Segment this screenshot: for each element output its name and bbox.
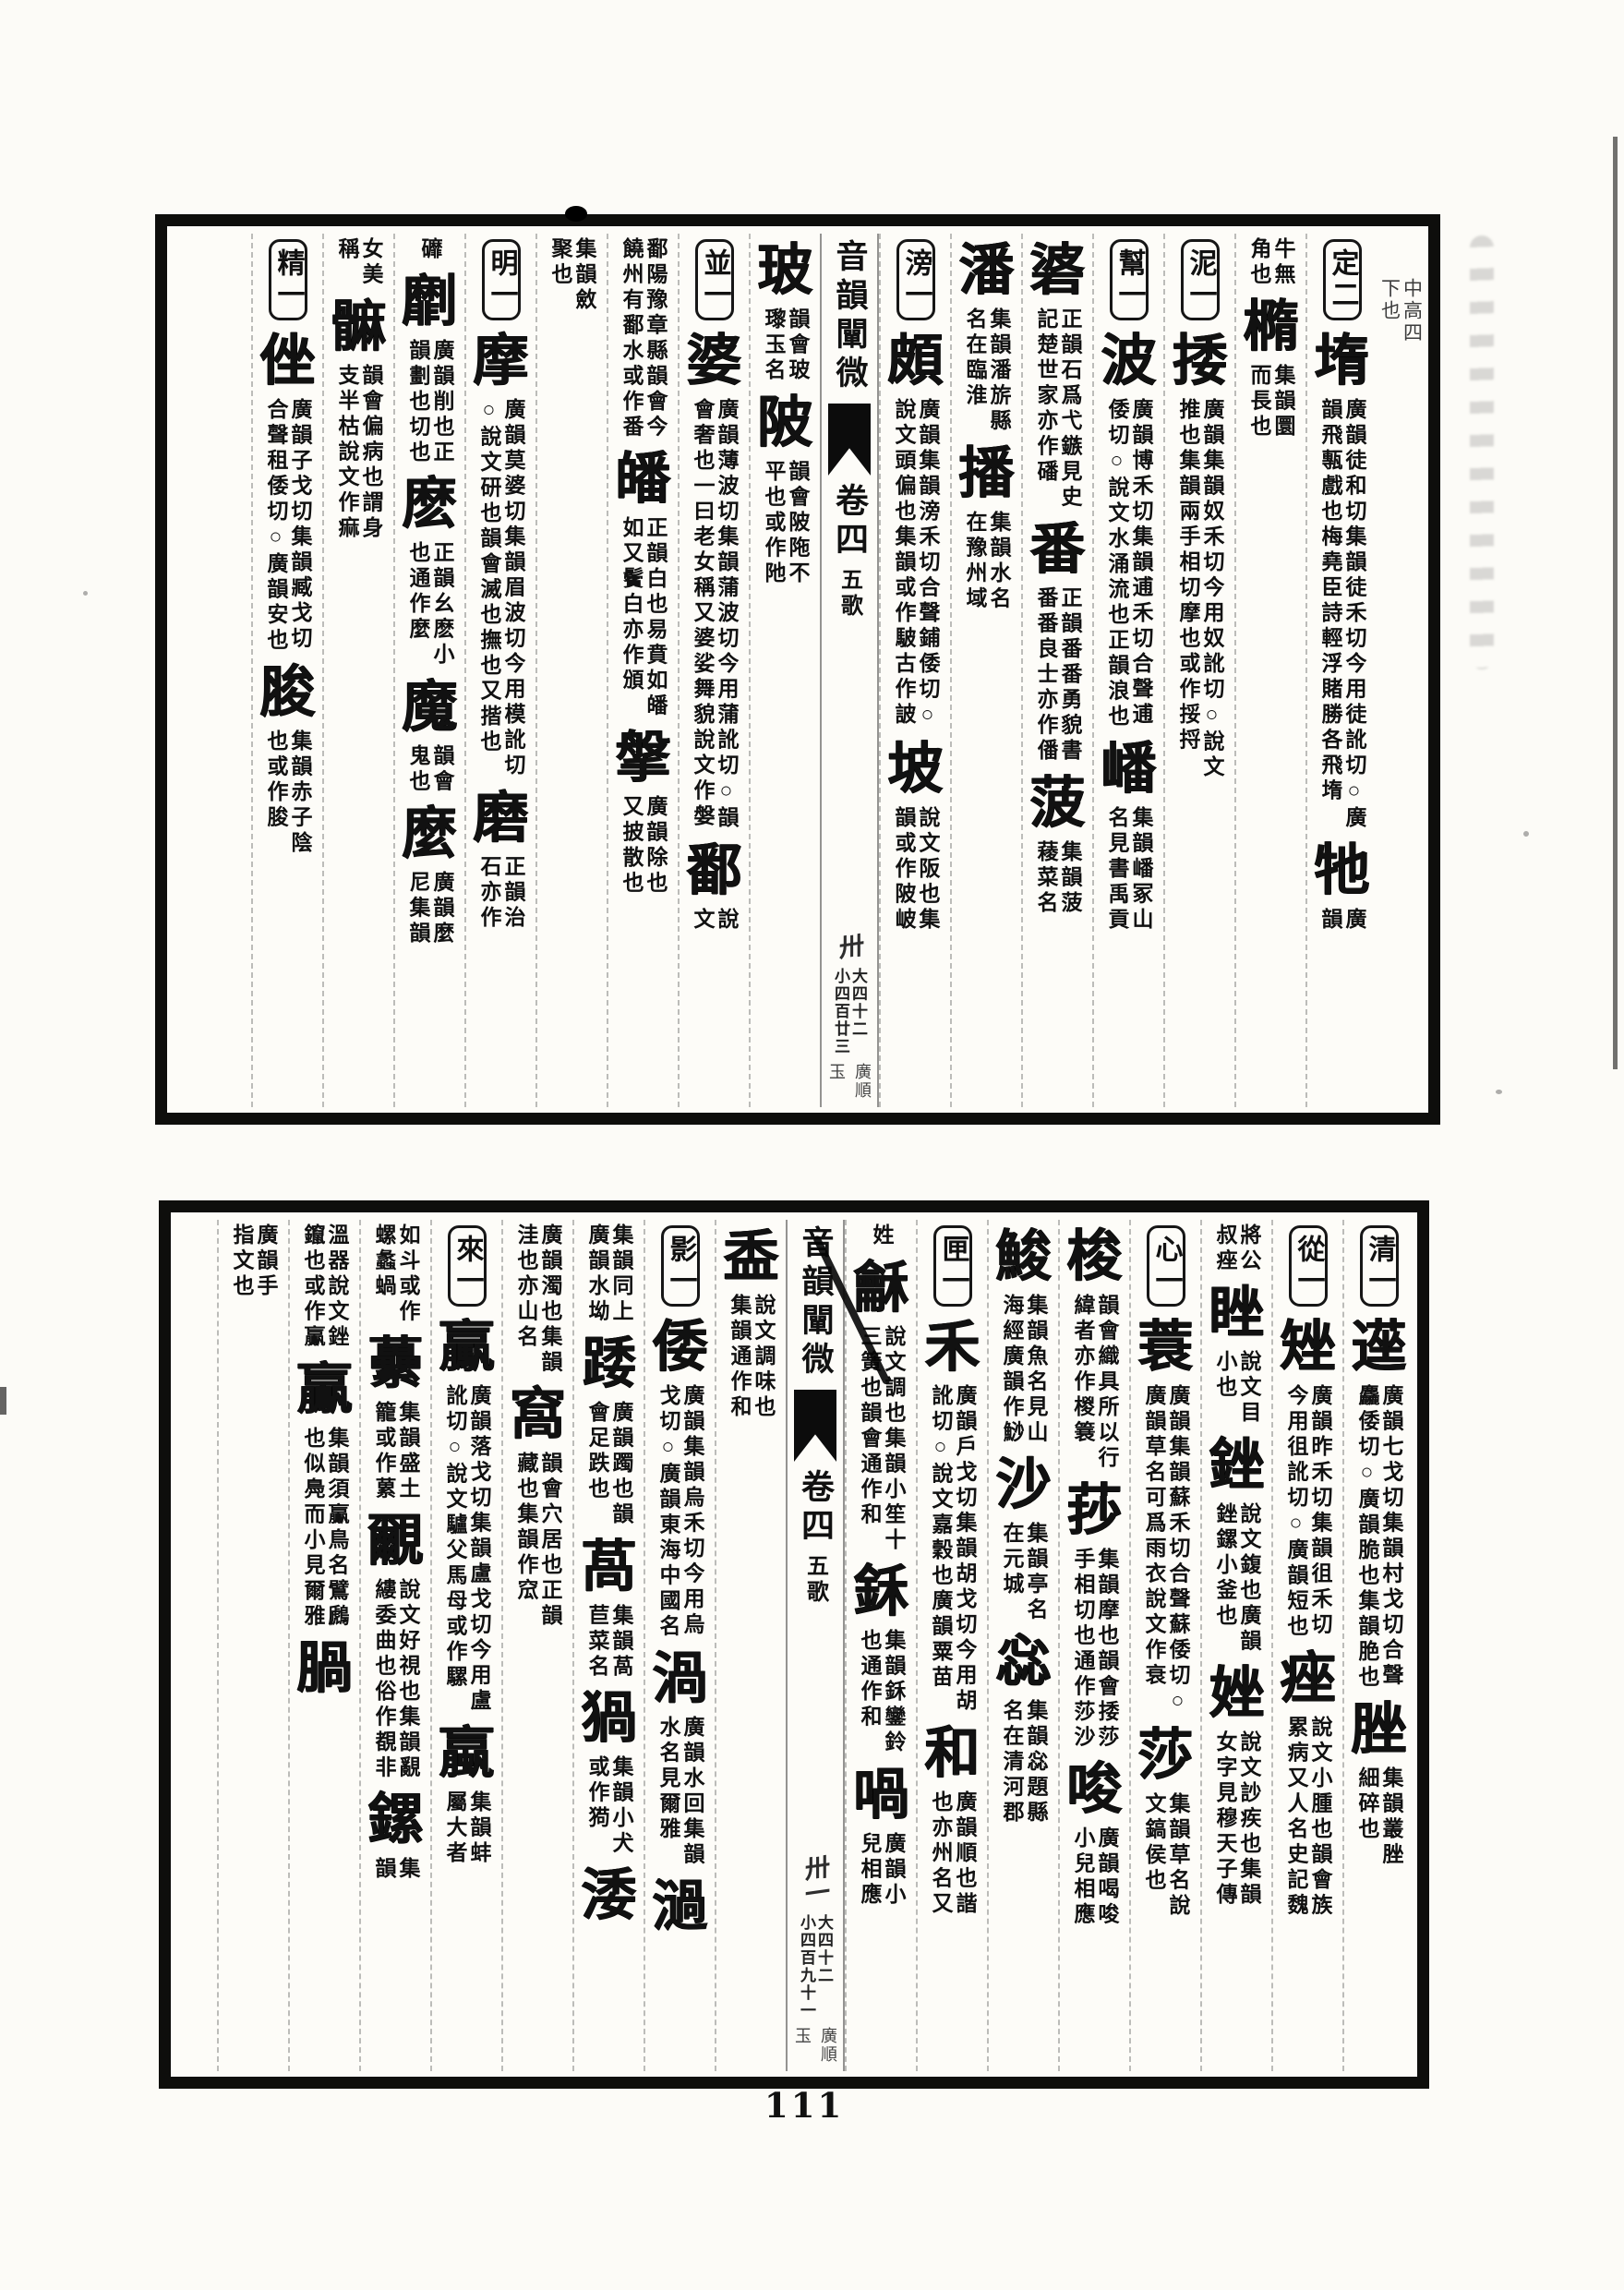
rhyme-name: 五歌 — [800, 1554, 832, 1606]
initial-class-label: 泥一 — [1181, 239, 1220, 320]
note-line-left: 韻 — [373, 1857, 394, 1883]
headword: 脞 — [1352, 1695, 1407, 1764]
headword: 覼 — [368, 1507, 424, 1575]
headword: 盉 — [724, 1223, 779, 1291]
headword: 牠 — [1315, 837, 1370, 905]
entry-column: 從一矬廣韻昨禾切集韻徂禾切今用徂訛切○廣韻短也痤說文小腫也韻會族累病又人名史記魏 — [1271, 1220, 1342, 2071]
gloss-note: 韻會陂陁不平也或作阤 — [763, 460, 808, 587]
note-line-right: 集韻草名說 — [1167, 1792, 1188, 1920]
initial-class-label: 來一 — [448, 1225, 487, 1307]
headword: 涹 — [582, 1862, 637, 1930]
note-line-right: 如斗或作 — [397, 1223, 418, 1325]
margin-annotation: 中高四下也 — [1380, 278, 1422, 344]
top-leaf-columns: 中高四下也定二堶廣韻徒和切集韻徒禾切今用徒訛切○廣韻飛甎戲也梅堯臣詩輕浮賭勝各飛… — [167, 226, 1428, 1113]
note-line-left: 又披散也 — [620, 795, 642, 897]
continuation-note: 廣韻手指文也 — [231, 1223, 276, 1300]
note-line-right: 集韻萵 — [610, 1604, 632, 1681]
juan-number: 卷四 — [791, 1469, 839, 1547]
gloss-note: 廣韻除也又披散也 — [620, 795, 666, 897]
headword: 禾 — [925, 1313, 980, 1381]
note-line-left: 緯者亦作椶簔 — [1072, 1294, 1093, 1472]
headword: 脧 — [260, 658, 316, 727]
headword: 莏 — [1067, 1476, 1123, 1545]
small-char-count: 小四百九十一 — [799, 1914, 814, 2019]
note-line-right: 廣韻喝唆 — [1096, 1826, 1117, 1928]
headword: 驘 — [439, 1313, 495, 1381]
gloss-note: 說文小腫也韻會族累病又人名史記魏 — [1285, 1716, 1330, 1919]
headword: 梭 — [1067, 1223, 1123, 1291]
gloss-note: 廣韻削也正韻劃也切也 — [407, 339, 452, 466]
headword: 鉌 — [854, 1558, 909, 1626]
note-line-left: 藏也集韻作窊 — [515, 1452, 536, 1630]
note-line-left: 集韻通作和 — [728, 1294, 750, 1421]
note-line-left: 螺蠡蝸 — [373, 1223, 394, 1325]
gloss-note: 廣韻順也諧也亦州名又 — [930, 1790, 975, 1918]
gloss-note: 韻會織具所以行緯者亦作椶簔 — [1072, 1294, 1117, 1472]
gloss-note: 集韻菠薐菜名 — [1035, 840, 1080, 917]
note-line-right: 集韻同上 — [610, 1223, 632, 1325]
note-line-left: 韻 — [1319, 908, 1341, 934]
note-line-right: 韻會 — [431, 744, 452, 795]
note-line-right: 說文調味也 — [752, 1294, 774, 1421]
note-line-left: 訛切○說文嘉穀也廣韻粟苗 — [930, 1384, 951, 1715]
gloss-note: 廣韻集韻滂禾切合聲鋪倭切○說文頭偏也集韻或作駊古作詖 — [893, 398, 938, 730]
note-line-right: 正韻幺麽小 — [431, 541, 452, 669]
entry-column: 幫一波廣韻博禾切集韻逋禾切合聲逋倭切○說文水涌流也正韻浪也嶓集韻嶓冢山名見書禹貢 — [1092, 234, 1163, 1107]
carver-mark: 廣順 — [816, 2027, 840, 2064]
gloss-note: 說文訬疾也集韻女字見穆天子傳 — [1214, 1730, 1259, 1909]
entry-column: 鄱陽豫章縣韻會今饒州有鄱水或作番皤正韻白也易賁如皤如又鬢白亦作頒搫廣韻除也又披散… — [607, 234, 678, 1107]
gloss-note: 廣韻子戈切集韻臧戈切合聲租倭切○廣韻安也 — [265, 398, 310, 654]
entry-column: 玻韻會玻瓈玉名陂韻會陂陁不平也或作阤 — [749, 234, 820, 1107]
carver-marks: 廣順玉 — [824, 1063, 874, 1100]
initial-class-label: 明一 — [482, 239, 521, 320]
carver-mark: 玉 — [824, 1063, 848, 1100]
note-line-left: 記楚世家亦作磻 — [1035, 307, 1056, 511]
entry-column: 清一遳廣韻七戈切集韻村戈切合聲麤倭切○廣韻脆也集韻脃也脞集韻叢脞細碎也 — [1342, 1220, 1413, 2071]
large-char-count: 大四十二 — [816, 1914, 832, 2019]
note-line-left: 番番良士亦作僠 — [1035, 586, 1056, 765]
gloss-note: 韻會鬼也 — [407, 744, 452, 795]
note-line-right: 集韻惢題縣 — [1025, 1699, 1046, 1826]
gloss-note: 正韻白也易賁如皤如又鬢白亦作頒 — [620, 516, 666, 719]
gloss-note: 韻會偏病也謂身支半枯說文作痲 — [336, 364, 381, 542]
gloss-note: 廣韻莫婆切集韻眉波切今用模訛切○說文研也韻會滅也撫也又揩也 — [478, 398, 523, 779]
note-line-right: 集韻亭名 — [1025, 1522, 1046, 1623]
scan-speckle — [83, 591, 88, 596]
entry-column: 潘集韻潘旂縣名在臨淮播集韻水名在豫州域 — [950, 234, 1021, 1107]
note-line-right: 集 — [397, 1857, 418, 1883]
gloss-note: 廣韻博禾切集韻逋禾切合聲逋倭切○說文水涌流也正韻浪也 — [1106, 398, 1151, 730]
continuation-note: 女美稱 — [336, 237, 381, 288]
note-line-left: 洼也亦山名 — [515, 1223, 536, 1376]
note-line-left: 瓈玉名 — [763, 307, 784, 384]
entry-column: 泥一捼廣韻集韻奴禾切今用奴訛切○說文推也集韻兩手相切摩也或作挼捋 — [1163, 234, 1234, 1107]
note-line-left: 在元城 — [1001, 1522, 1022, 1623]
gloss-note: 集韻 — [373, 1857, 418, 1883]
fishtail-mark — [794, 1390, 836, 1462]
headword: 鮻 — [996, 1223, 1052, 1291]
large-char-count: 大四十二 — [850, 968, 866, 1055]
note-line-right: 廣韻戶戈切集韻胡戈切今用胡 — [954, 1384, 975, 1715]
note-line-right: 將公 — [1238, 1223, 1259, 1274]
headword: 菠 — [1030, 769, 1086, 838]
note-line-right: 廣韻水回集韻 — [681, 1716, 703, 1868]
margin-annotation-text: 中高四 — [1402, 278, 1422, 344]
entry-column: 溫器說文銼鑹也或作鸁鸁集韻須鸁鳥名鷿鷉也似鳧而小見爾雅腡 — [288, 1220, 359, 2071]
entry-column: 鮻集韻魚名見山海經廣韻作鯋沙集韻亭名在元城惢集韻惢題縣名在清河郡 — [987, 1220, 1058, 2071]
headword: 摩 — [474, 327, 529, 395]
note-line-left: 叔痤 — [1214, 1223, 1235, 1274]
headword: 頗 — [888, 327, 944, 395]
headword: 矬 — [1281, 1313, 1336, 1381]
note-line-left: 如又鬢白亦作頒 — [620, 516, 642, 719]
continuation-note: 牛無角也 — [1248, 237, 1293, 288]
note-line-right: 集韻嶓冢山 — [1130, 806, 1151, 934]
note-line-right: 說文調也集韻小笙十 — [883, 1325, 904, 1554]
gloss-note: 集韻亭名在元城 — [1001, 1522, 1046, 1623]
note-line-left: 石亦作 — [478, 855, 499, 932]
note-line-right: 集韻摩也韻會捼莎 — [1096, 1548, 1117, 1751]
bottom-leaf-columns: 清一遳廣韻七戈切集韻村戈切合聲麤倭切○廣韻脆也集韻脃也脞集韻叢脞細碎也從一矬廣韻… — [171, 1212, 1417, 2077]
headword: 喎 — [854, 1761, 909, 1829]
scanned-book-page: 中高四下也定二堶廣韻徒和切集韻徒禾切今用徒訛切○廣韻飛甎戲也梅堯臣詩輕浮賭勝各飛… — [0, 0, 1624, 2290]
entry-column: 姓龢說文調也集韻小笙十三簧也韻會通作和鉌集韻鉌鑾鈴也通作和喎廣韻小兒相應 — [845, 1220, 916, 2071]
note-line-right: 集韻魚名見山 — [1025, 1294, 1046, 1446]
note-line-right: 韻會穴居也正韻 — [539, 1452, 560, 1630]
headword: 魔 — [403, 673, 458, 741]
gloss-note: 正韻治石亦作 — [478, 855, 523, 932]
gloss-note: 韻會玻瓈玉名 — [763, 307, 808, 384]
gloss-note: 廣韻七戈切集韻村戈切合聲麤倭切○廣韻脆也集韻脃也 — [1356, 1384, 1401, 1691]
margin-annotation-column: 中高四下也 — [1377, 234, 1425, 1107]
gloss-note: 集韻摩也韻會捼莎手相切也通作莎沙 — [1072, 1548, 1117, 1751]
note-line-left: 名見書禹貢 — [1106, 806, 1127, 934]
note-line-right: 說文訬疾也集韻 — [1238, 1730, 1259, 1909]
note-line-left: 廣韻草名可爲雨衣說文作衰 — [1143, 1384, 1164, 1717]
note-line-right: 正韻番番勇貌書 — [1059, 586, 1080, 765]
carver-mark: 玉 — [790, 2027, 814, 2064]
gloss-note: 說文 — [692, 908, 737, 934]
note-line-right: 說文小腫也韻會族 — [1309, 1716, 1330, 1919]
headword: 搫 — [616, 724, 671, 792]
entry-column: 廣韻手指文也 — [217, 1220, 288, 2071]
entry-column: 並一婆廣韻薄波切集韻蒲波切今用蒲訛切○韻會奢也一曰老女稱又婆娑舞貌說文作媻鄱說文 — [678, 234, 749, 1107]
gloss-note: 集韻草名說文鎬侯也 — [1143, 1792, 1188, 1920]
headword: 㛗 — [1209, 1659, 1265, 1728]
headword: 沙 — [996, 1451, 1052, 1519]
entry-column: 廣韻濁也集韻洼也亦山名窩韻會穴居也正韻藏也集韻作窊 — [501, 1220, 572, 2071]
character-counts: 大四十二小四百九十一 — [799, 1914, 832, 2019]
note-line-left: 銼鏍小釜也 — [1214, 1502, 1235, 1655]
note-line-right: 廣韻手 — [255, 1223, 276, 1300]
gloss-note: 廣韻薄波切集韻蒲波切今用蒲訛切○韻會奢也一曰老女稱又婆娑舞貌說文作媻 — [692, 398, 737, 832]
headword: 濄 — [653, 1873, 708, 1941]
note-line-right: 廣韻集韻奴禾切今用奴訛切○說文 — [1201, 398, 1222, 781]
initial-class-label: 滂一 — [896, 239, 935, 320]
entry-column: 女美稱髍韻會偏病也謂身支半枯說文作痲 — [322, 234, 393, 1107]
note-line-left: 文鎬侯也 — [1143, 1792, 1164, 1920]
note-line-left: 女字見穆天子傳 — [1214, 1730, 1235, 1909]
headword: 髍 — [331, 293, 387, 361]
gloss-note: 廣韻喝唆小兒相應 — [1072, 1826, 1117, 1928]
gloss-note: 廣韻徒和切集韻徒禾切今用徒訛切○廣韻飛甎戲也梅堯臣詩輕浮賭勝各飛堶 — [1319, 398, 1365, 832]
gloss-note: 說文調味也集韻通作和 — [728, 1294, 774, 1421]
note-line-right: 集韻鉌鑾鈴 — [883, 1629, 904, 1756]
gloss-note: 集韻赤子陰也或作朘 — [265, 729, 310, 857]
note-line-left: 薐菜名 — [1035, 840, 1056, 917]
headword: 鄱 — [687, 837, 742, 905]
headword: 龢 — [854, 1254, 909, 1322]
book-title: 音韻闡微 — [834, 239, 866, 394]
note-line-left: ○說文研也韻會滅也撫也又揩也 — [478, 398, 499, 779]
entry-column: 明一摩廣韻莫婆切集韻眉波切今用模訛切○說文研也韻會滅也撫也又揩也磨正韻治石亦作 — [464, 234, 535, 1107]
ink-blob — [565, 206, 587, 222]
note-line-right: 廣韻除也 — [644, 795, 666, 897]
note-line-left: 籠或作蔂 — [373, 1401, 394, 1502]
note-line-right: 正韻治 — [502, 855, 523, 932]
note-line-right: 廣韻集韻滂禾切合聲鋪倭切○ — [917, 398, 938, 730]
headword: 侳 — [260, 327, 316, 395]
headword: 蓑 — [1138, 1313, 1194, 1381]
gloss-note: 廣韻集韻烏禾切今用烏戈切○廣韻東海中國名 — [657, 1384, 703, 1640]
character-counts: 大四十二小四百廿三 — [833, 968, 866, 1055]
center-fold-column: 音韻闡微卷四五歌卅一大四十二小四百九十一廣順玉 — [786, 1220, 845, 2071]
entry-column: 匣一禾廣韻戶戈切集韻胡戈切今用胡訛切○說文嘉穀也廣韻粟苗和廣韻順也諧也亦州名又 — [916, 1220, 987, 2071]
note-line-left: 鬼也 — [407, 744, 428, 795]
entry-column: 來一驘廣韻落戈切集韻盧戈切今用盧訛切○說文驢父馬母或作騾蠃集韻蚌屬大者 — [430, 1220, 501, 2071]
note-line-right: 集韻圜 — [1272, 364, 1293, 440]
note-line-left: 而長也 — [1248, 364, 1269, 440]
note-line-left: 倭切○說文水涌流也正韻浪也 — [1106, 398, 1127, 730]
note-line-right: 集韻盛土 — [397, 1401, 418, 1502]
headword: 睉 — [1209, 1279, 1265, 1347]
note-line-left: 名在臨淮 — [964, 307, 985, 435]
gloss-note: 廣韻麼尼集韻 — [407, 871, 452, 947]
note-line-right: 廣韻順也諧 — [954, 1790, 975, 1918]
continuation-note: 將公叔痤 — [1214, 1223, 1259, 1274]
note-line-right: 鄱陽豫章縣韻會今 — [644, 237, 666, 440]
entry-column: 䃺劘廣韻削也正韻劃也切也麽正韻幺麽小也通作麼魔韻會鬼也麼廣韻麼尼集韻 — [393, 234, 464, 1107]
note-line-right: 廣韻七戈切集韻村戈切合聲 — [1380, 1384, 1401, 1691]
note-line-left: 也亦州名又 — [930, 1790, 951, 1918]
entry-column: 牛無角也橢集韻圜而長也 — [1234, 234, 1305, 1107]
gloss-note: 廣韻落戈切集韻盧戈切今用盧訛切○說文驢父馬母或作騾 — [444, 1384, 489, 1715]
note-line-right: 廣韻躅也韻 — [610, 1401, 632, 1528]
note-line-right: 韻會玻 — [787, 307, 808, 384]
gloss-note: 集韻嶓冢山名見書禹貢 — [1106, 806, 1151, 934]
note-line-left: 稱 — [336, 237, 357, 288]
headword: 堶 — [1315, 327, 1370, 395]
initial-class-label: 精一 — [269, 239, 307, 320]
headword: 銼 — [1209, 1431, 1265, 1500]
note-line-right: 廣韻落戈切集韻盧戈切今用盧 — [468, 1384, 489, 1715]
headword: 番 — [1030, 515, 1086, 584]
entry-column: 滂一頗廣韻集韻滂禾切合聲鋪倭切○說文頭偏也集韻或作駊古作詖坡說文阪也集韻或作陂岥 — [879, 234, 950, 1107]
continuation-note: 集韻斂聚也 — [549, 237, 595, 314]
initial-class-label: 影一 — [661, 1225, 700, 1307]
headword: 麼 — [403, 800, 458, 868]
initial-class-label: 心一 — [1147, 1225, 1185, 1307]
fishtail-mark — [828, 404, 871, 476]
note-line-right: 廣韻集韻烏禾切今用烏 — [681, 1384, 703, 1640]
scan-edge-line — [1613, 137, 1618, 1069]
gloss-note: 廣韻小兒相應 — [859, 1832, 904, 1909]
note-line-right: 廣韻徒和切集韻徒禾切今用徒訛切○廣 — [1343, 398, 1365, 832]
note-line-left: 推也集韻兩手相切摩也或作挼捋 — [1177, 398, 1198, 781]
continuation-note: 集韻同上廣韻水坳 — [586, 1223, 632, 1325]
note-line-left: 累病又人名史記魏 — [1285, 1716, 1306, 1919]
note-line-left: 說文頭偏也集韻或作駊古作詖 — [893, 398, 914, 730]
note-line-right: 正韻白也易賁如皤 — [644, 516, 666, 719]
note-line-right: 集韻水名 — [988, 511, 1009, 612]
note-line-left: 水名見爾雅 — [657, 1716, 679, 1868]
note-line-left: 也通作和 — [859, 1629, 880, 1756]
headword: 潘 — [959, 236, 1015, 305]
note-line-left: 或作㺃 — [586, 1755, 607, 1857]
gloss-note: 集韻蚌屬大者 — [444, 1790, 489, 1867]
continuation-note: 溫器說文銼鑹也或作鸁 — [302, 1223, 347, 1351]
carver-marks: 廣順玉 — [790, 2027, 840, 2064]
folio-mark: 卅 — [832, 931, 868, 960]
initial-class-label: 從一 — [1289, 1225, 1328, 1307]
gloss-note: 說文調也集韻小笙十三簧也韻會通作和 — [859, 1325, 904, 1554]
initial-class-label: 幫一 — [1110, 239, 1149, 320]
initial-class-label: 並一 — [695, 239, 734, 320]
headword: 橢 — [1244, 293, 1299, 361]
headword: 皤 — [616, 445, 671, 513]
note-line-right: 䃺 — [419, 237, 440, 263]
note-line-right: 說文阪也集 — [917, 806, 938, 934]
headword: 坡 — [888, 735, 944, 803]
margin-annotation-text: 下也 — [1380, 278, 1400, 344]
gloss-note: 正韻幺麽小也通作麼 — [407, 541, 452, 669]
note-line-right: 正韻石爲弋鏃見史 — [1059, 307, 1080, 511]
note-line-left: 也或作朘 — [265, 729, 286, 857]
gloss-note: 集韻水名在豫州域 — [964, 511, 1009, 612]
note-line-left: 在豫州域 — [964, 511, 985, 612]
note-line-right: 廣韻莫婆切集韻眉波切今用模訛切 — [502, 398, 523, 779]
note-line-right: 廣韻濁也集韻 — [539, 1223, 560, 1376]
headword: 惢 — [996, 1628, 1052, 1696]
note-line-left: 指文也 — [231, 1223, 252, 1300]
page-number: 111 — [764, 2085, 844, 2126]
scan-edge-mark — [0, 1387, 6, 1415]
note-line-right: 廣韻昨禾切集韻徂禾切 — [1309, 1384, 1330, 1640]
headword: 捼 — [1173, 327, 1228, 395]
gloss-note: 集韻惢題縣名在清河郡 — [1001, 1699, 1046, 1826]
continuation-note: 廣韻濁也集韻洼也亦山名 — [515, 1223, 560, 1376]
headword: 玻 — [758, 236, 813, 305]
note-line-right: 姓 — [871, 1223, 892, 1249]
headword: 鏍 — [368, 1786, 424, 1854]
note-line-left: 麤倭切○廣韻脆也集韻脃也 — [1356, 1384, 1377, 1691]
headword: 踒 — [582, 1330, 637, 1398]
scan-speckle — [1496, 1090, 1502, 1094]
gloss-note: 集韻圜而長也 — [1248, 364, 1293, 440]
note-line-right: 集韻斂 — [573, 237, 595, 314]
note-line-left: 聚也 — [549, 237, 571, 314]
headword: 莎 — [1138, 1721, 1194, 1790]
note-line-right: 說文鍑也廣韻 — [1238, 1502, 1259, 1655]
entry-column: 將公叔痤睉說文目小也銼說文鍑也廣韻銼鏍小釜也㛗說文訬疾也集韻女字見穆天子傳 — [1200, 1220, 1271, 2071]
note-line-left: 屬大者 — [444, 1790, 465, 1867]
gloss-note: 集韻須鸁鳥名鷿鷉也似鳧而小見爾雅 — [302, 1427, 347, 1630]
note-line-right: 韻會偏病也謂身 — [360, 364, 381, 542]
note-line-right: 廣韻薄波切集韻蒲波切今用蒲訛切○韻 — [716, 398, 737, 832]
gloss-note: 廣韻 — [1319, 908, 1365, 934]
gloss-note: 說文鍑也廣韻銼鏍小釜也 — [1214, 1502, 1259, 1655]
headword: 萵 — [582, 1533, 637, 1601]
headword: 唆 — [1067, 1755, 1123, 1824]
gloss-note: 廣韻水回集韻水名見爾雅 — [657, 1716, 703, 1868]
headword: 虆 — [368, 1330, 424, 1398]
initial-class-label: 定二 — [1323, 239, 1362, 320]
note-line-left: 廣韻水坳 — [586, 1223, 607, 1325]
note-line-right: 集韻小犬 — [610, 1755, 632, 1857]
headword: 婆 — [687, 327, 742, 395]
note-line-left: 小也 — [1214, 1350, 1235, 1427]
note-line-left: 海經廣韻作鯋 — [1001, 1294, 1022, 1446]
note-line-right: 韻會陂陁不 — [787, 460, 808, 587]
note-line-left: 兒相應 — [859, 1832, 880, 1909]
note-line-left: 細碎也 — [1356, 1766, 1377, 1868]
headword: 和 — [925, 1719, 980, 1788]
note-line-right: 廣韻博禾切集韻逋禾切合聲逋 — [1130, 398, 1151, 730]
gloss-note: 正韻石爲弋鏃見史記楚世家亦作磻 — [1035, 307, 1080, 511]
headword: 磨 — [474, 784, 529, 852]
note-line-right: 廣韻小 — [883, 1832, 904, 1909]
headword: 陂 — [758, 389, 813, 457]
note-line-left: 縷委曲也俗作覩非 — [373, 1578, 394, 1781]
note-line-right: 集韻叢脞 — [1380, 1766, 1401, 1868]
continuation-note: 䃺 — [419, 237, 440, 263]
note-line-left: 韻或作陂岥 — [893, 806, 914, 934]
entry-column: 碆正韻石爲弋鏃見史記楚世家亦作磻番正韻番番勇貌書番番良士亦作僠菠集韻菠薐菜名 — [1021, 234, 1092, 1107]
initial-class-label: 匣一 — [933, 1225, 972, 1307]
note-line-right: 說 — [716, 908, 737, 934]
gloss-note: 說文目小也 — [1214, 1350, 1259, 1427]
note-line-left: 戈切○廣韻東海中國名 — [657, 1384, 679, 1640]
note-line-left: 名在清河郡 — [1001, 1699, 1022, 1826]
headword: 倭 — [653, 1313, 708, 1381]
note-line-left: 會足跌也 — [586, 1401, 607, 1528]
gloss-note: 集韻叢脞細碎也 — [1356, 1766, 1401, 1868]
note-line-left: 也似鳧而小見爾雅 — [302, 1427, 323, 1630]
headword: 劘 — [403, 268, 458, 336]
folio-mark: 卅一 — [798, 1852, 834, 1907]
entry-column: 定二堶廣韻徒和切集韻徒禾切今用徒訛切○廣韻飛甎戲也梅堯臣詩輕浮賭勝各飛堶牠廣韻 — [1305, 234, 1377, 1107]
note-line-right: 女美 — [360, 237, 381, 288]
gloss-note: 集韻魚名見山海經廣韻作鯋 — [1001, 1294, 1046, 1446]
gloss-note: 集韻鉌鑾鈴也通作和 — [859, 1629, 904, 1756]
headword: 遳 — [1352, 1313, 1407, 1381]
note-line-left: 韻劃也切也 — [407, 339, 428, 466]
headword: 波 — [1101, 327, 1157, 395]
top-leaf: 中高四下也定二堶廣韻徒和切集韻徒禾切今用徒訛切○廣韻飛甎戲也梅堯臣詩輕浮賭勝各飛… — [155, 214, 1440, 1125]
note-line-right: 牛無 — [1272, 237, 1293, 288]
note-line-left: 鑹也或作鸁 — [302, 1223, 323, 1351]
entry-column: 影一倭廣韻集韻烏禾切今用烏戈切○廣韻東海中國名渦廣韻水回集韻水名見爾雅濄 — [644, 1220, 715, 2071]
gloss-note: 說文阪也集韻或作陂岥 — [893, 806, 938, 934]
continuation-note: 姓 — [871, 1223, 892, 1249]
headword: 碆 — [1030, 236, 1086, 305]
note-line-left: 饒州有鄱水或作番 — [620, 237, 642, 440]
note-line-right: 說文好視也集韻覶 — [397, 1578, 418, 1781]
gloss-note: 正韻番番勇貌書番番良士亦作僠 — [1035, 586, 1080, 765]
gloss-note: 廣韻集韻蘇禾切合聲蘇倭切○廣韻草名可爲雨衣說文作衰 — [1143, 1384, 1188, 1717]
scan-speckle — [1523, 831, 1529, 837]
